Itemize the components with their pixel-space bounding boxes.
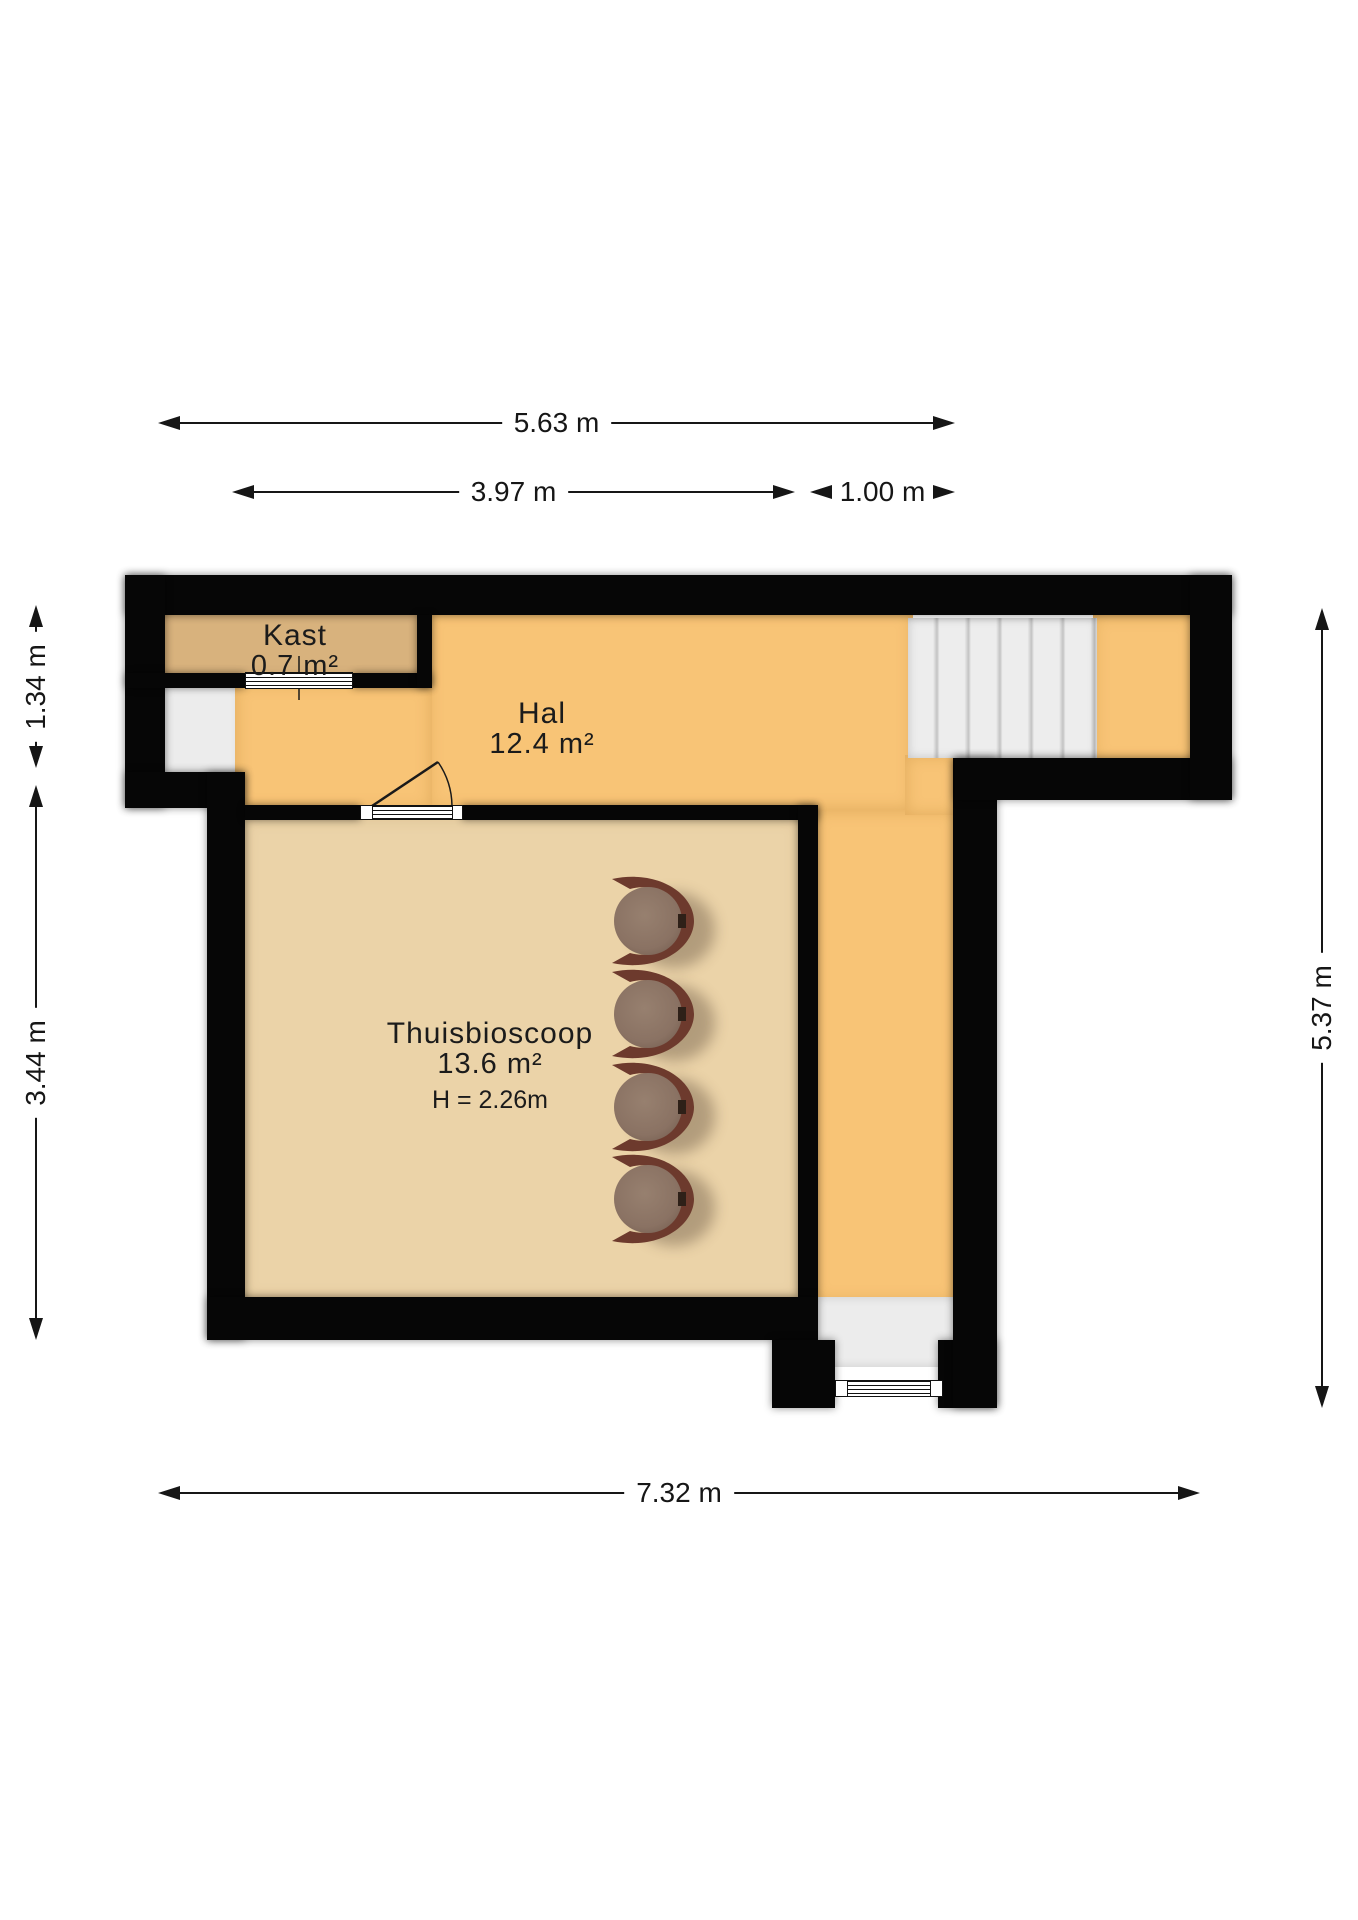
dimension-value: 5.37 m [1306,953,1338,1063]
cinema-chair-icon [612,1155,715,1246]
room-area: 13.6 m² [340,1049,640,1080]
room-area: 12.4 m² [442,729,642,760]
floorplan-canvas: Kast 0.7 m² Hal 12.4 m² Thuisbioscoop 13… [0,0,1358,1920]
dimension-value: 1.00 m [836,476,930,508]
arrow-down-icon [29,1318,43,1340]
wall-left-lower [207,772,245,1340]
dimension-value: 5.63 m [502,407,612,439]
door-swing-icon [372,762,452,806]
arrow-right-icon [1178,1486,1200,1500]
entry-door-jamb [930,1380,943,1397]
room-name: Kast [165,620,425,651]
furniture-and-symbols-layer [0,0,1358,1920]
wall-right-outer [1190,575,1232,800]
dimension-top-total: 5.63 m [158,408,955,438]
dimension-left-upper: 1.34 m [21,605,51,768]
arrow-right-icon [933,485,955,499]
cinema-chair-icon [612,877,715,968]
room-label-thuisbioscoop: Thuisbioscoop 13.6 m² H = 2.26m [340,1018,640,1113]
wall-thuis-top-left [245,805,360,820]
room-name: Thuisbioscoop [340,1018,640,1049]
room-name: Hal [442,698,642,729]
wall-bottom [207,1297,818,1340]
hal-door-jamb [452,805,463,820]
room-area: 0.7 m² [165,651,425,682]
hal-door-threshold [372,805,453,820]
arrow-down-icon [29,746,43,768]
wall-top [125,575,1232,615]
room-label-hal: Hal 12.4 m² [442,698,642,760]
dimension-value: 3.97 m [459,476,569,508]
arrow-left-icon [158,1486,180,1500]
entry-door [847,1380,931,1397]
arrow-up-icon [29,605,43,627]
room-label-kast: Kast 0.7 m² [165,620,425,682]
dimension-top-right: 1.00 m [810,477,955,507]
arrow-right-icon [773,485,795,499]
dimension-left-lower: 3.44 m [21,785,51,1340]
dimension-right-side: 5.37 m [1307,608,1337,1408]
dimension-value: 1.34 m [20,632,52,742]
wall-thuis-top-right [462,805,818,820]
arrow-up-icon [1315,608,1329,630]
arrow-left-icon [810,485,832,499]
wall-entry-left [772,1340,835,1408]
arrow-left-icon [158,416,180,430]
wall-corridor-right [953,758,997,1408]
room-ceiling-height: H = 2.26m [340,1087,640,1113]
arrow-right-icon [933,416,955,430]
dimension-value: 7.32 m [624,1477,734,1509]
dimension-top-hal: 3.97 m [232,477,795,507]
arrow-left-icon [232,485,254,499]
dimension-bottom-total: 7.32 m [158,1478,1200,1508]
dimension-value: 3.44 m [20,1008,52,1118]
wall-thuis-right [798,805,818,1297]
arrow-up-icon [29,785,43,807]
arrow-down-icon [1315,1386,1329,1408]
